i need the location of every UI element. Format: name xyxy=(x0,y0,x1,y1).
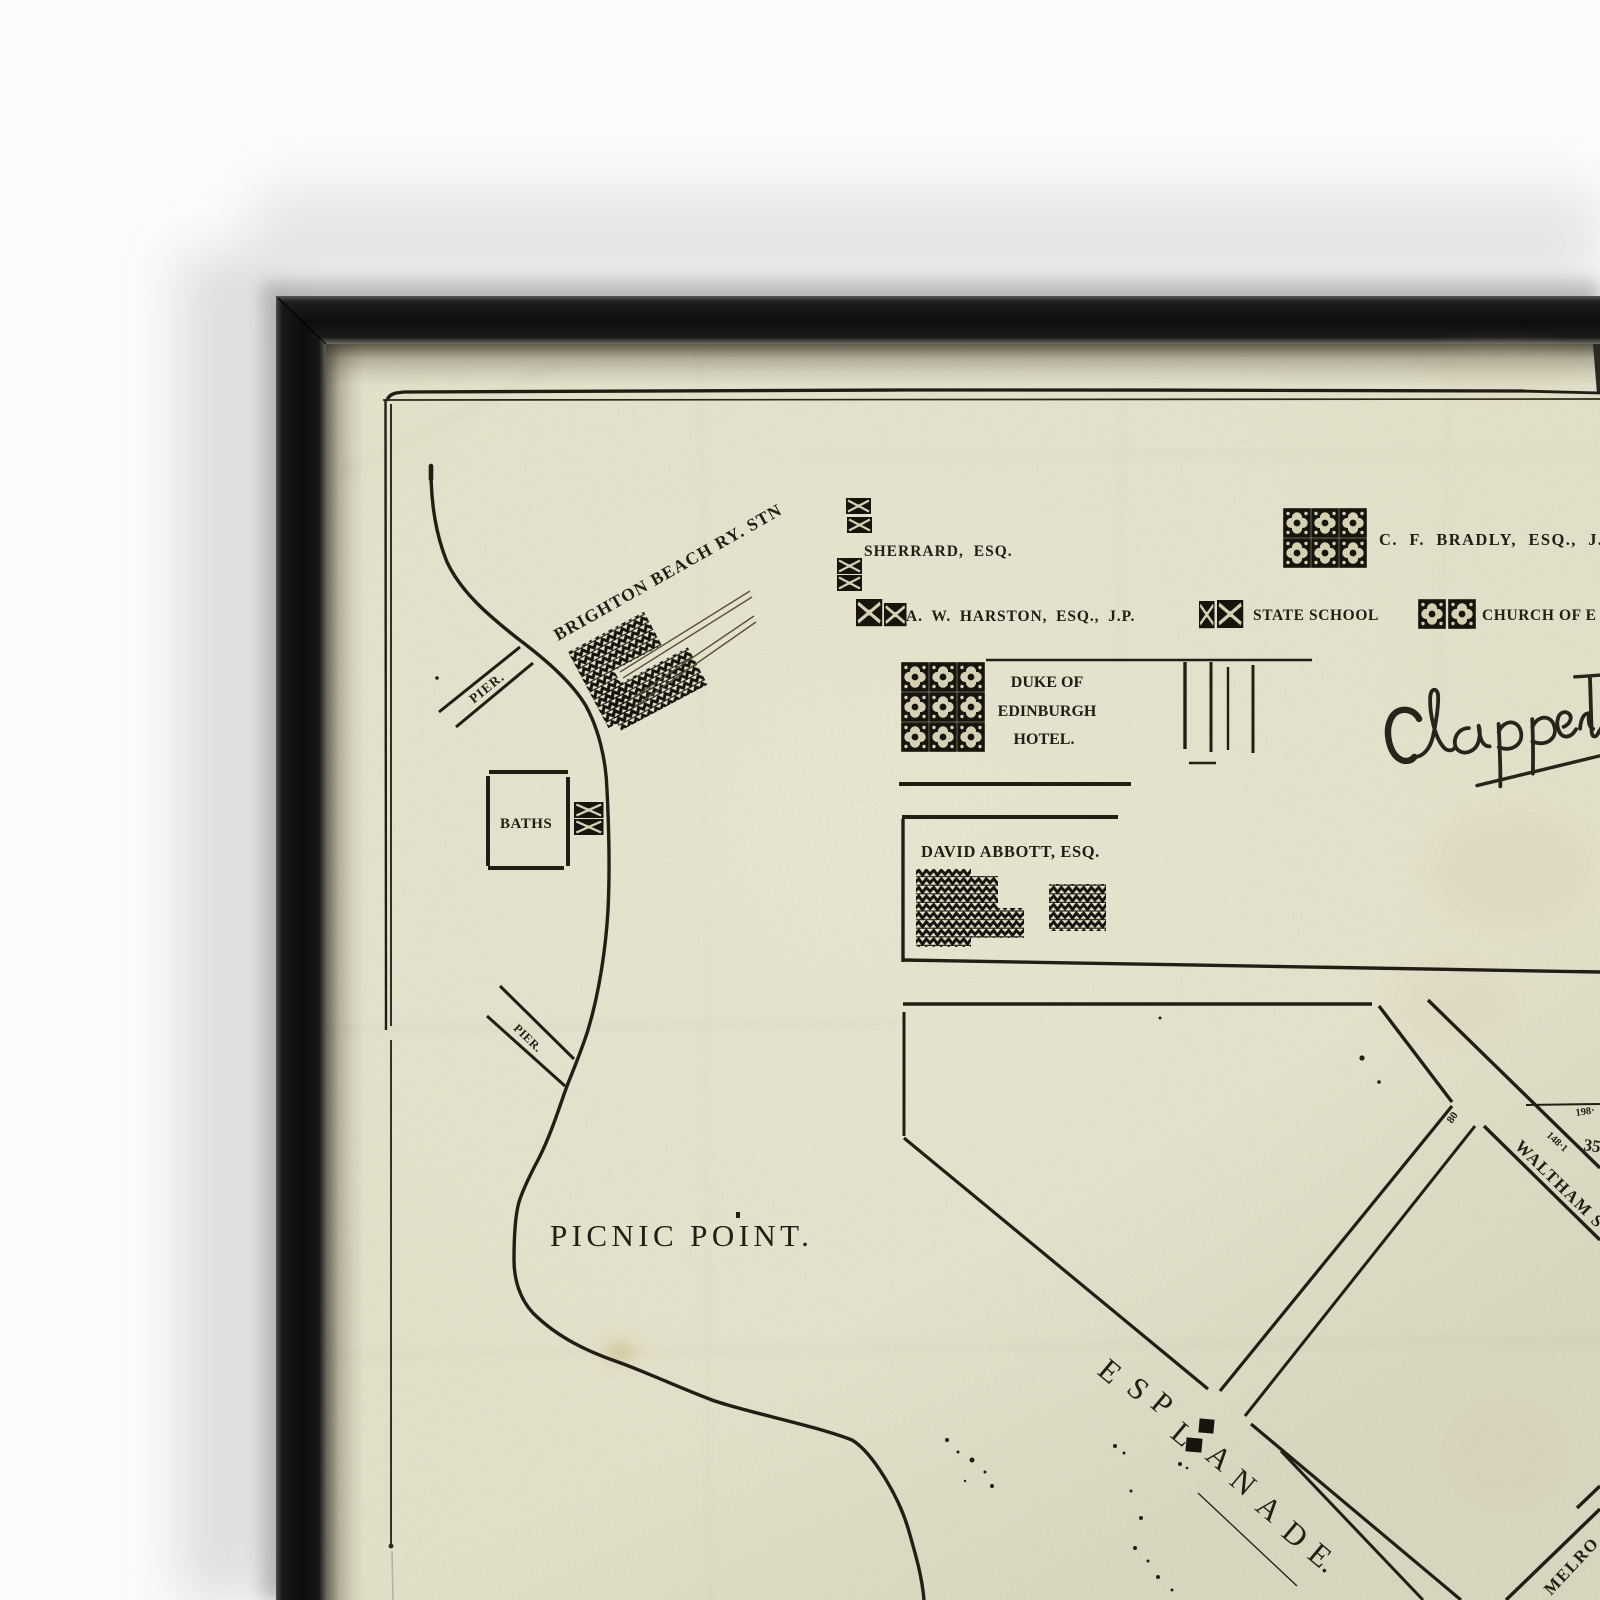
svg-text:HOTEL.: HOTEL. xyxy=(1014,731,1075,748)
svg-text:BATHS: BATHS xyxy=(500,816,552,832)
svg-text:CHURCH OF E: CHURCH OF E xyxy=(1482,607,1597,624)
svg-text:STATE SCHOOL: STATE SCHOOL xyxy=(1253,607,1379,624)
svg-text:35: 35 xyxy=(1582,1135,1600,1156)
svg-text:A. W. HARSTON, ESQ., J.P.: A. W. HARSTON, ESQ., J.P. xyxy=(906,608,1135,625)
svg-text:PICNIC POINT.: PICNIC POINT. xyxy=(550,1218,813,1253)
svg-text:SHERRARD, ESQ.: SHERRARD, ESQ. xyxy=(864,543,1013,560)
svg-text:DAVID ABBOTT, ESQ.: DAVID ABBOTT, ESQ. xyxy=(921,842,1100,861)
svg-text:EDINBURGH: EDINBURGH xyxy=(998,703,1097,720)
svg-text:C. F. BRADLY, ESQ., J.: C. F. BRADLY, ESQ., J. xyxy=(1379,530,1600,549)
svg-text:DUKE OF: DUKE OF xyxy=(1011,674,1084,691)
